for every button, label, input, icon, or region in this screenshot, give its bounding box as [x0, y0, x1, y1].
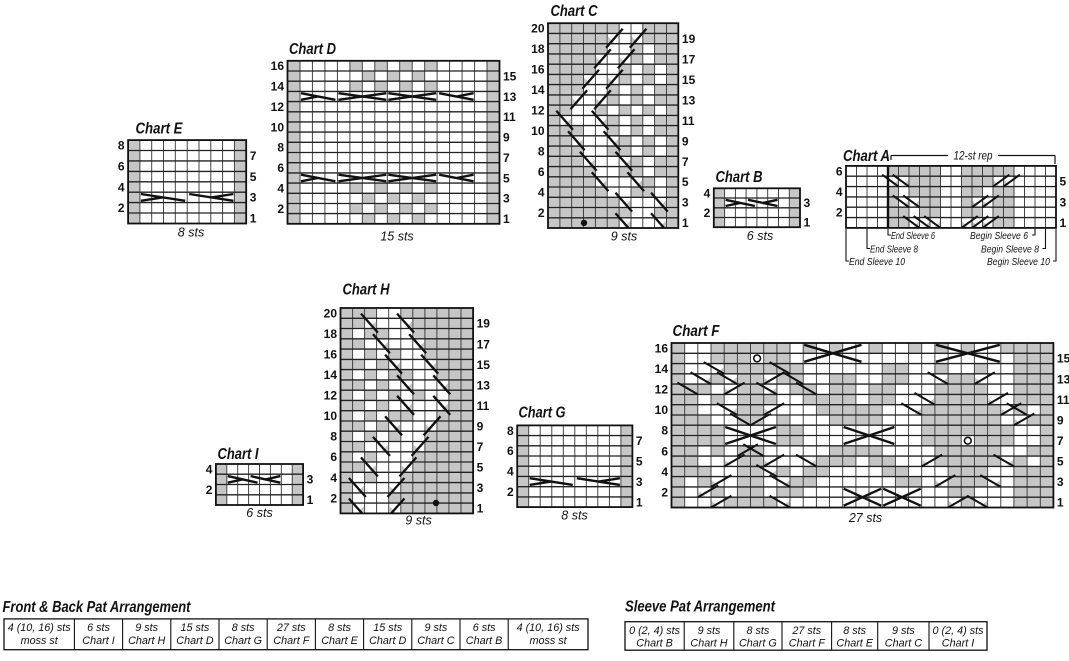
svg-text:2: 2 [704, 206, 711, 220]
svg-text:6: 6 [507, 444, 514, 458]
svg-text:3: 3 [1060, 195, 1067, 209]
svg-text:4: 4 [277, 182, 284, 196]
svg-text:Chart I: Chart I [82, 635, 114, 647]
svg-text:13: 13 [477, 378, 491, 392]
svg-text:19: 19 [477, 317, 491, 331]
svg-text:Chart F: Chart F [673, 323, 721, 340]
svg-text:2: 2 [507, 485, 514, 499]
svg-text:15: 15 [477, 358, 491, 372]
svg-text:6: 6 [836, 164, 843, 178]
svg-text:6: 6 [277, 161, 284, 175]
svg-text:8 sts: 8 sts [843, 625, 866, 637]
svg-text:Chart C: Chart C [551, 3, 598, 20]
svg-text:20: 20 [531, 22, 545, 36]
svg-text:1: 1 [636, 495, 643, 509]
svg-text:10: 10 [324, 409, 338, 423]
svg-text:End Sleeve 6: End Sleeve 6 [891, 231, 935, 242]
svg-text:6: 6 [118, 160, 125, 174]
svg-text:19: 19 [682, 32, 696, 46]
svg-text:Chart I: Chart I [218, 446, 259, 463]
svg-text:8: 8 [538, 145, 545, 159]
svg-text:13: 13 [1057, 372, 1069, 386]
svg-text:5: 5 [1057, 455, 1064, 469]
svg-text:10: 10 [271, 120, 285, 134]
svg-text:4: 4 [507, 465, 514, 479]
svg-text:6: 6 [538, 165, 545, 179]
svg-text:15 sts: 15 sts [380, 230, 413, 244]
svg-text:2: 2 [277, 202, 284, 216]
svg-text:8 sts: 8 sts [746, 625, 769, 637]
svg-text:8: 8 [507, 424, 514, 438]
svg-text:11: 11 [477, 399, 490, 413]
svg-text:Chart H: Chart H [690, 638, 727, 650]
svg-text:17: 17 [682, 52, 696, 66]
svg-text:13: 13 [503, 90, 517, 104]
svg-text:5: 5 [477, 461, 484, 475]
svg-text:11: 11 [503, 110, 516, 124]
svg-text:Begin Sleeve 6: Begin Sleeve 6 [970, 231, 1028, 242]
svg-text:1: 1 [503, 212, 510, 226]
svg-text:13: 13 [682, 93, 696, 107]
svg-text:5: 5 [503, 171, 510, 185]
svg-text:16: 16 [271, 59, 285, 73]
svg-text:7: 7 [503, 151, 510, 165]
svg-text:5: 5 [682, 175, 689, 189]
svg-text:0 (2, 4) sts: 0 (2, 4) sts [932, 625, 984, 637]
svg-text:Chart H: Chart H [128, 635, 165, 647]
svg-text:2: 2 [206, 483, 213, 497]
svg-text:10: 10 [655, 403, 669, 417]
svg-text:moss st: moss st [21, 635, 59, 647]
svg-text:Chart D: Chart D [176, 635, 213, 647]
svg-text:15 sts: 15 sts [373, 622, 402, 634]
svg-text:16: 16 [655, 342, 669, 356]
svg-text:7: 7 [477, 440, 484, 454]
svg-text:Chart F: Chart F [273, 635, 310, 647]
svg-text:Chart C: Chart C [885, 638, 922, 650]
svg-text:Chart I: Chart I [942, 638, 974, 650]
svg-text:4: 4 [538, 186, 545, 200]
svg-text:Chart G: Chart G [739, 638, 777, 650]
svg-text:9 sts: 9 sts [698, 625, 721, 637]
svg-text:9 sts: 9 sts [611, 230, 637, 244]
svg-text:moss st: moss st [529, 635, 567, 647]
svg-text:12: 12 [655, 383, 669, 397]
svg-text:3: 3 [477, 481, 484, 495]
svg-text:6 sts: 6 sts [747, 229, 773, 243]
svg-text:15: 15 [682, 73, 696, 87]
svg-text:8: 8 [277, 141, 284, 155]
svg-text:18: 18 [531, 42, 545, 56]
svg-text:6: 6 [330, 450, 337, 464]
svg-text:Begin Sleeve 10: Begin Sleeve 10 [987, 257, 1050, 268]
svg-text:9 sts: 9 sts [892, 625, 915, 637]
svg-text:Front & Back Pat Arrangement: Front & Back Pat Arrangement [3, 599, 192, 616]
svg-text:Chart E: Chart E [321, 635, 358, 647]
svg-text:End Sleeve 10: End Sleeve 10 [849, 257, 905, 268]
svg-text:27 sts: 27 sts [791, 625, 821, 637]
svg-text:1: 1 [250, 212, 257, 226]
svg-text:3: 3 [682, 196, 689, 210]
svg-text:3: 3 [636, 475, 643, 489]
svg-text:0 (2, 4) sts: 0 (2, 4) sts [629, 625, 681, 637]
svg-text:15: 15 [503, 69, 517, 83]
svg-text:Chart G: Chart G [519, 405, 566, 422]
svg-text:11: 11 [1057, 393, 1069, 407]
svg-text:Chart E: Chart E [836, 638, 873, 650]
svg-text:7: 7 [1057, 434, 1064, 448]
svg-text:Chart D: Chart D [369, 635, 406, 647]
svg-text:14: 14 [655, 362, 669, 376]
svg-text:16: 16 [531, 63, 545, 77]
svg-text:Begin Sleeve 8: Begin Sleeve 8 [981, 245, 1039, 256]
svg-text:8: 8 [118, 139, 125, 153]
svg-text:9 sts: 9 sts [424, 622, 447, 634]
svg-text:20: 20 [324, 307, 338, 321]
svg-text:1: 1 [477, 502, 484, 516]
svg-text:End Sleeve 8: End Sleeve 8 [870, 245, 918, 256]
svg-text:14: 14 [271, 80, 285, 94]
svg-text:Chart G: Chart G [224, 635, 262, 647]
svg-text:Chart F: Chart F [789, 638, 826, 650]
svg-text:8 sts: 8 sts [232, 622, 255, 634]
svg-text:2: 2 [118, 201, 125, 215]
svg-text:5: 5 [250, 170, 257, 184]
svg-text:27 sts: 27 sts [276, 622, 306, 634]
svg-text:3: 3 [1057, 475, 1064, 489]
svg-text:9 sts: 9 sts [405, 514, 431, 528]
svg-text:9: 9 [682, 134, 689, 148]
svg-text:9: 9 [477, 419, 484, 433]
svg-text:8 sts: 8 sts [328, 622, 351, 634]
svg-text:12: 12 [324, 389, 338, 403]
svg-text:6 sts: 6 sts [87, 622, 110, 634]
svg-text:1: 1 [1057, 496, 1064, 510]
svg-text:8: 8 [330, 430, 337, 444]
svg-text:6 sts: 6 sts [473, 622, 496, 634]
svg-text:11: 11 [682, 114, 695, 128]
svg-text:4: 4 [704, 187, 711, 201]
svg-text:4: 4 [330, 471, 337, 485]
svg-text:Chart E: Chart E [136, 121, 184, 138]
svg-text:18: 18 [324, 327, 338, 341]
svg-text:2: 2 [330, 491, 337, 505]
svg-text:8 sts: 8 sts [561, 509, 587, 523]
svg-text:1: 1 [307, 493, 314, 507]
svg-text:7: 7 [636, 434, 643, 448]
svg-text:2: 2 [661, 485, 668, 499]
svg-text:12: 12 [271, 100, 285, 114]
svg-text:8 sts: 8 sts [178, 226, 204, 240]
svg-text:3: 3 [307, 473, 314, 487]
svg-text:2: 2 [836, 206, 843, 220]
svg-text:1: 1 [1060, 216, 1067, 230]
svg-text:3: 3 [804, 196, 811, 210]
svg-text:1: 1 [804, 216, 811, 230]
svg-text:2: 2 [538, 206, 545, 220]
svg-text:9 sts: 9 sts [135, 622, 158, 634]
svg-text:Chart B: Chart B [636, 638, 673, 650]
svg-text:4: 4 [206, 462, 213, 476]
svg-text:9: 9 [1057, 413, 1064, 427]
svg-text:15 sts: 15 sts [180, 622, 209, 634]
svg-text:7: 7 [250, 149, 257, 163]
svg-text:14: 14 [324, 368, 338, 382]
svg-text:12: 12 [531, 104, 545, 118]
svg-text:16: 16 [324, 348, 338, 362]
svg-text:17: 17 [477, 337, 491, 351]
svg-text:4 (10, 16) sts: 4 (10, 16) sts [517, 622, 581, 634]
svg-text:5: 5 [1060, 175, 1067, 189]
svg-text:4: 4 [836, 185, 843, 199]
svg-text:Chart B: Chart B [466, 635, 503, 647]
svg-text:14: 14 [531, 83, 545, 97]
svg-text:4: 4 [118, 180, 125, 194]
svg-text:Chart H: Chart H [343, 282, 390, 299]
svg-text:Chart A: Chart A [843, 148, 890, 165]
svg-text:6 sts: 6 sts [246, 506, 272, 520]
svg-text:9: 9 [503, 131, 510, 145]
svg-text:Chart D: Chart D [289, 41, 336, 58]
svg-text:4: 4 [661, 465, 668, 479]
svg-text:4 (10, 16) sts: 4 (10, 16) sts [8, 622, 72, 634]
svg-text:15: 15 [1057, 352, 1069, 366]
svg-text:7: 7 [682, 155, 689, 169]
svg-text:8: 8 [661, 424, 668, 438]
svg-text:3: 3 [250, 191, 257, 205]
svg-text:3: 3 [503, 192, 510, 206]
svg-text:12-st rep: 12-st rep [954, 151, 994, 163]
svg-text:1: 1 [682, 216, 689, 230]
svg-text:5: 5 [636, 455, 643, 469]
svg-text:27 sts: 27 sts [848, 511, 882, 525]
svg-text:10: 10 [531, 124, 545, 138]
svg-text:Chart C: Chart C [417, 635, 454, 647]
svg-text:Sleeve Pat Arrangement: Sleeve Pat Arrangement [625, 599, 776, 616]
svg-text:Chart B: Chart B [716, 169, 763, 186]
svg-text:6: 6 [661, 444, 668, 458]
